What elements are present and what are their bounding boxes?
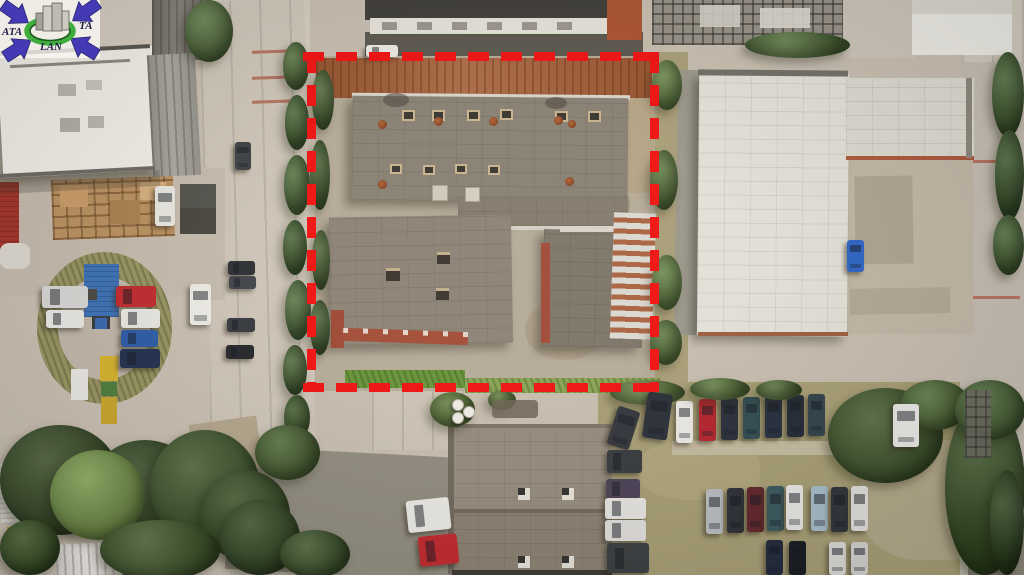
roadside-car-2 [229, 276, 256, 289]
lot-top-bush-1 [690, 378, 750, 400]
scaffold-tarp-1 [700, 5, 740, 27]
lot1-car-7 [808, 394, 825, 436]
skylight-r2-3 [455, 164, 467, 174]
satellite-dish-2 [463, 406, 475, 418]
hedge-topright [745, 32, 850, 58]
lot-right-tree-4 [990, 470, 1024, 575]
annex-edge-right [966, 78, 972, 158]
top-window-5 [522, 22, 537, 30]
road-car-white [190, 284, 211, 325]
warehouse-trim-bottom [698, 332, 848, 336]
tree-topleft [185, 0, 233, 62]
junk-row [492, 400, 538, 418]
lot1-car-3 [721, 398, 738, 440]
sw-brick-wall-left [331, 310, 344, 348]
lot2-car-6 [811, 486, 828, 531]
wb-hvac-4 [88, 116, 104, 128]
tent-white [71, 369, 88, 400]
skylight-r2-2 [423, 165, 435, 175]
lot1-car-1 [676, 401, 693, 443]
watermark-text-bottom: LAN [39, 41, 63, 53]
bin-blue [95, 318, 107, 329]
house-car-3 [607, 450, 642, 473]
lot-car-white-single [893, 404, 919, 447]
white-building-roofline [912, 0, 1012, 14]
house-roof-lower [452, 512, 612, 572]
hedge-road-4 [283, 220, 307, 275]
house-car-5 [605, 498, 646, 519]
house-ridge [452, 509, 612, 513]
top-window-1 [382, 22, 397, 30]
lot3-car-2 [789, 541, 806, 575]
skylight-r1-3 [467, 110, 480, 121]
lot1-car-6 [787, 395, 804, 437]
house-chimney-4 [562, 556, 574, 568]
vent-r2-2 [565, 177, 574, 186]
main-building-roof [352, 96, 629, 202]
sw-chimney-1 [386, 268, 400, 281]
house-car-6 [605, 520, 646, 541]
house-car-4 [606, 479, 640, 499]
sw-chimney-3 [436, 288, 449, 300]
courtyard-car-blue [847, 240, 864, 272]
road-right-tree-3 [993, 215, 1024, 275]
lot1-car-4 [743, 397, 760, 439]
lot3-car-3 [829, 542, 846, 575]
lot-path [672, 441, 837, 455]
house-chimney-3 [518, 556, 530, 568]
road-car-1 [235, 142, 251, 170]
top-window-4 [487, 22, 502, 30]
satellite-dish-1 [452, 399, 464, 411]
circle-car-red [116, 286, 156, 307]
roof-stain-2 [545, 97, 567, 109]
concrete-topright [843, 0, 915, 58]
lot3-car-1 [766, 540, 783, 575]
skylight-r2-4 [488, 165, 500, 175]
vent-r2-1 [378, 180, 387, 189]
center-car-red [418, 533, 460, 567]
house-chimney-2 [562, 488, 574, 500]
house-roof-upper [452, 426, 612, 512]
vent-r1-3 [489, 117, 498, 126]
vent-r1-4 [554, 116, 563, 125]
top-red-building [607, 0, 642, 40]
sw-chimney-2 [437, 252, 450, 264]
scaffold-tarp-2 [760, 8, 810, 28]
wb-hvac-2 [86, 80, 102, 90]
boundary-bottom [303, 383, 659, 392]
wb-hvac-3 [60, 118, 80, 132]
circle-car-white-1 [46, 310, 84, 328]
warehouse-roof-edge [698, 69, 848, 76]
courtyard-mark-2 [850, 287, 950, 315]
lot1-car-2 [699, 399, 716, 441]
bin-green [101, 382, 117, 396]
roadside-car-3 [227, 318, 255, 332]
lot2-car-7 [831, 487, 848, 532]
top-window-6 [557, 22, 572, 30]
warehouse-annex [846, 78, 974, 158]
pallet-patch-2 [110, 200, 140, 224]
lot2-car-5 [786, 485, 803, 530]
wb-wall-right [147, 53, 201, 177]
house-bottom-shadow [452, 570, 612, 575]
roadside-car-4 [226, 345, 254, 359]
se-brick-wall-left [541, 243, 550, 343]
lot2-car-1 [706, 489, 723, 534]
watermark-text-right: TA [79, 20, 92, 32]
se-white-top [560, 226, 615, 232]
warehouse-roof [697, 73, 849, 336]
lot-top-bush-2 [756, 380, 802, 400]
sw-building-roof [329, 214, 513, 345]
aerial-photo-canvas: ATA TA LAN [0, 0, 1024, 575]
top-window-2 [417, 22, 432, 30]
dark-containers-top [180, 184, 216, 208]
lot2-car-8 [851, 486, 868, 531]
lot2-car-3 [747, 487, 764, 532]
roadside-car-1 [228, 261, 255, 275]
lot2-car-4 [767, 486, 784, 531]
skylight-r1-4 [500, 109, 513, 120]
bin-yellow-2 [101, 397, 117, 424]
skylight-r1-6 [588, 111, 601, 122]
bin-yellow-1 [100, 356, 118, 381]
bl-tree-6 [0, 520, 60, 575]
vent-r1-1 [378, 120, 387, 129]
hedge-road-2 [285, 95, 309, 150]
circle-van-silver [42, 286, 88, 308]
center-van-white [405, 497, 451, 533]
lot2-car-2 [727, 488, 744, 533]
lot1-car-5 [765, 396, 782, 438]
vent-r1-5 [568, 120, 576, 128]
road-right-tree-2 [995, 130, 1024, 220]
skylight-r2-1 [390, 164, 402, 174]
wb-hvac-1 [58, 84, 76, 96]
roof-stain-1 [383, 93, 409, 107]
house-van [607, 543, 649, 573]
satellite-dish-3 [452, 412, 464, 424]
top-bldg-roof [365, 0, 613, 20]
road-right-tree-1 [992, 52, 1024, 137]
boundary-left [307, 52, 316, 392]
roof-panel-2 [465, 187, 480, 202]
hedge-road-1 [283, 42, 309, 90]
boundary-right [650, 52, 659, 392]
house-chimney-1 [518, 488, 530, 500]
road-right-mark-2 [968, 296, 1020, 299]
scaffold-tower [965, 390, 991, 458]
top-window-3 [452, 22, 467, 30]
watermark-logo: ATA TA LAN [0, 0, 102, 62]
skylight-r1-1 [402, 110, 415, 121]
bl-tree-5 [100, 520, 220, 575]
lot3-car-4 [851, 542, 868, 575]
vent-r1-2 [434, 117, 443, 126]
circle-car-navy [120, 349, 160, 368]
bl-tree-8 [280, 530, 350, 575]
annex-trim [846, 156, 974, 160]
white-pallet-pile [0, 243, 30, 269]
yard-car-white [155, 186, 175, 226]
circle-car-blue [121, 330, 158, 347]
watermark-text-left: ATA [1, 26, 22, 38]
boundary-top [303, 52, 659, 61]
roof-panel-1 [432, 185, 448, 201]
house-top-edge [452, 424, 612, 428]
road-bend-tree [255, 425, 320, 480]
circle-car-white-2 [121, 309, 160, 328]
